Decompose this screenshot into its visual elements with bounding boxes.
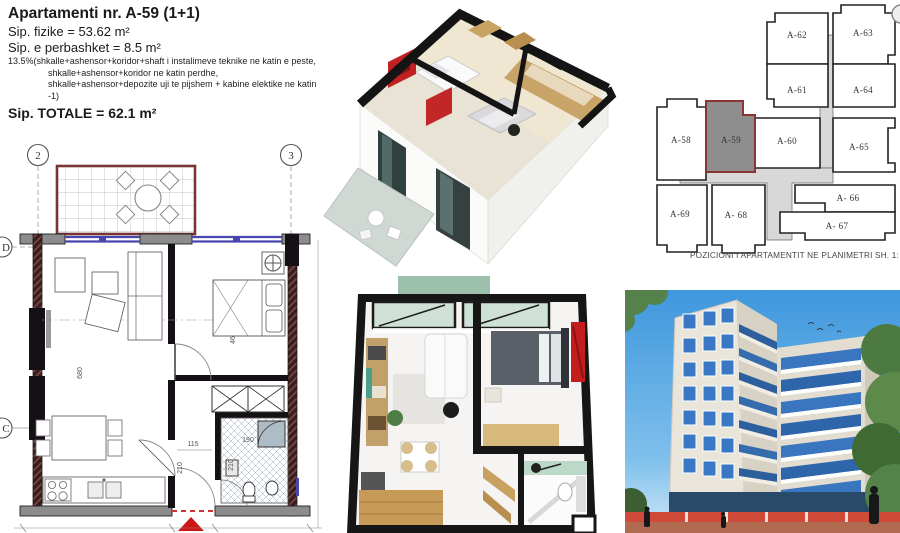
note-line-3: shkalle+ashensor+depozite uji te pijshem…: [8, 79, 323, 102]
wall-partition: [168, 244, 175, 344]
artwork-teal: [366, 368, 372, 398]
round-table: [443, 402, 459, 418]
key-label-a62: A-62: [787, 30, 807, 40]
key-label-a61: A-61: [787, 85, 807, 95]
info-panel: Apartamenti nr. A-59 (1+1) Sip. fizike =…: [8, 5, 323, 121]
wall-bottom: [215, 506, 310, 516]
topview-partition: [481, 446, 589, 454]
wall-right-block: [285, 234, 299, 266]
key-plan-caption: POZICIONI I APARTAMENTIT NE PLANIMETRI S…: [690, 251, 899, 260]
appliance: [368, 346, 386, 360]
bidet: [266, 481, 278, 495]
vanity: [576, 476, 586, 512]
wall-right: [288, 234, 297, 516]
floor-plan: 2 3 D C: [0, 140, 332, 533]
faucet: [102, 478, 105, 481]
wall-bath-top: [215, 412, 288, 418]
dining-chair: [36, 420, 50, 436]
grid-label-3: 3: [288, 150, 294, 162]
door-arc-bedroom: [175, 344, 211, 380]
pillow-top: [551, 334, 561, 382]
topview-partition: [473, 302, 481, 454]
wall-pier: [20, 234, 65, 244]
key-label-a63: A-63: [853, 28, 873, 38]
dim-hall-height: 210: [177, 462, 184, 474]
shower-fixture: [531, 463, 541, 473]
sofa-top: [425, 334, 467, 398]
dim-bath-width: 190: [242, 437, 254, 444]
wall-pier: [140, 234, 192, 244]
headboard: [561, 328, 569, 388]
dining-table: [52, 416, 106, 460]
dim-living-height: 680: [77, 367, 84, 379]
note-line-1: 13.5%(shkalle+ashensor+koridor+shaft i i…: [8, 56, 323, 68]
entry-arrow: [178, 517, 204, 531]
apartment-sheet: Apartamenti nr. A-59 (1+1) Sip. fizike =…: [0, 0, 900, 533]
key-label-a68: A- 68: [725, 210, 748, 220]
wall-left: [33, 234, 42, 516]
window-tick: [233, 236, 240, 242]
dining-chair: [36, 440, 50, 456]
construction-barrier: [625, 512, 900, 522]
wall-partition: [168, 476, 175, 508]
top-view-render: [333, 276, 623, 533]
area-physical: Sip. fizike = 53.62 m²: [8, 24, 323, 39]
note-line-2: shkalle+ashensor+koridor ne katin perdhe…: [8, 68, 323, 80]
dining-chair: [108, 440, 122, 456]
key-label-a67: A- 67: [826, 221, 849, 231]
iso-coffee-table: [508, 124, 520, 136]
key-plan: A-62 A-63 A-61 A-64 A-58 A-59 A-60 A-65 …: [645, 0, 900, 264]
topview-partition: [518, 454, 524, 525]
page-title: Apartamenti nr. A-59 (1+1): [8, 5, 323, 23]
plant: [387, 410, 403, 426]
dim-bath-height: 210: [228, 459, 235, 471]
shower: [258, 421, 285, 447]
chair: [425, 460, 437, 472]
bath-niche: [573, 516, 595, 533]
key-label-a64: A-64: [853, 85, 873, 95]
iso-balcony-table: [368, 210, 384, 226]
iso-window-pane-2: [440, 172, 453, 236]
area-total: Sip. TOTALE = 62.1 m²: [8, 105, 323, 121]
radiator: [46, 310, 51, 348]
chair: [425, 442, 437, 454]
wall-left-block: [29, 308, 45, 370]
key-label-a69: A-69: [670, 209, 690, 219]
bench-wood: [483, 424, 559, 446]
chair: [401, 460, 413, 472]
window-tick: [99, 236, 106, 242]
bed-top: [491, 331, 561, 385]
pillow: [266, 310, 282, 332]
pillow: [266, 284, 282, 306]
door-leaf: [139, 440, 175, 476]
building-photo: [625, 290, 900, 533]
key-label-a65: A-65: [849, 142, 869, 152]
appliance: [368, 416, 386, 430]
balcony-table: [135, 185, 161, 211]
iso-balcony-chair-2: [359, 229, 372, 240]
coffee-table: [92, 272, 118, 294]
sink-bowl: [88, 482, 103, 498]
key-label-a66: A- 66: [837, 193, 860, 203]
window-right: [296, 478, 299, 496]
chair: [401, 442, 413, 454]
dim-hall-width: 115: [187, 441, 198, 448]
ground: [625, 522, 900, 533]
pillow-top: [539, 334, 549, 382]
wall-bottom: [20, 506, 172, 516]
wall-bedroom-bottom: [175, 375, 288, 381]
topview-canopy: [398, 276, 490, 294]
armchair: [85, 294, 125, 331]
grid-label-C: C: [2, 423, 9, 435]
key-label-a60: A-60: [777, 136, 797, 146]
sink-bowl: [106, 482, 121, 498]
iso-render: [318, 0, 640, 292]
wall-partition: [168, 380, 175, 440]
wall-bath-left: [215, 418, 221, 480]
tv-cabinet: [55, 258, 85, 292]
grid-label-2: 2: [35, 150, 41, 162]
area-shared: Sip. e perbashket = 8.5 m²: [8, 40, 323, 55]
dining-chair: [108, 420, 122, 436]
wood-table: [359, 490, 443, 525]
cabinet: [361, 472, 385, 490]
grid-label-D: D: [2, 242, 10, 254]
toilet-tank: [243, 496, 255, 502]
key-label-a58: A-58: [671, 135, 691, 145]
nightstand: [485, 388, 501, 402]
key-label-a59: A-59: [721, 135, 741, 145]
toilet-top: [558, 483, 572, 501]
tower-left: [669, 300, 745, 518]
